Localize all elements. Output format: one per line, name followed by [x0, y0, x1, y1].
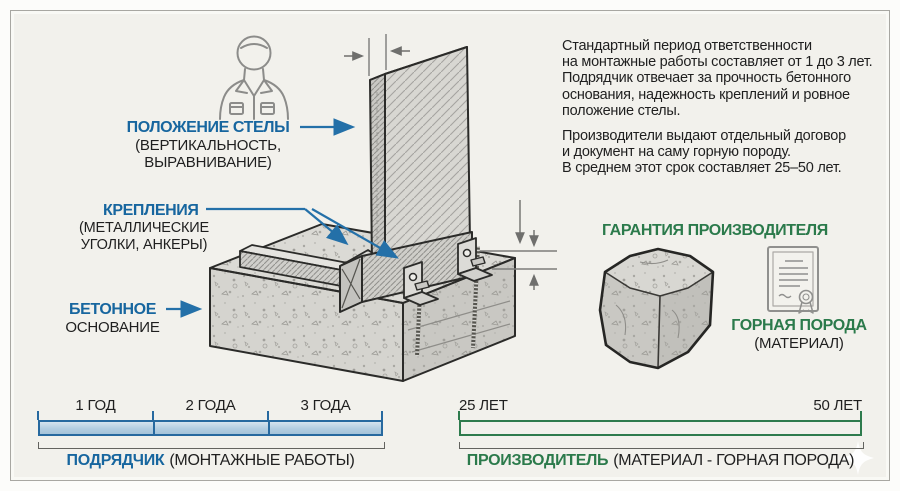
- manufacturer-timeline-bar: [459, 420, 862, 436]
- material-subtitle: (МАТЕРИАЛ): [724, 335, 874, 353]
- timeline-tick: [37, 411, 39, 420]
- stele-position-title: ПОЛОЖЕНИЕ СТЕЛЫ: [108, 118, 308, 137]
- manufacturer-brace: [459, 442, 864, 449]
- manufacturer-caption-rest: (МАТЕРИАЛ - ГОРНАЯ ПОРОДА): [613, 452, 854, 469]
- manufacturer-caption: ПРОИЗВОДИТЕЛЬ(МАТЕРИАЛ - ГОРНАЯ ПОРОДА): [449, 452, 872, 470]
- contractor-segment-2: 2 ГОДА: [153, 397, 268, 414]
- info-text-block: Стандартный период ответственности на мо…: [562, 38, 890, 177]
- manufacturer-warranty-title: ГАРАНТИЯ ПРОИЗВОДИТЕЛЯ: [602, 222, 828, 240]
- info-paragraph-1: Стандартный период ответственности на мо…: [562, 38, 890, 119]
- callout-fasteners-title: КРЕПЛЕНИЯ: [103, 202, 198, 220]
- timeline-tick: [458, 411, 460, 420]
- foundation-line1: БЕТОННОЕ: [50, 300, 175, 319]
- stele-position-line3: ВЫРАВНИВАНИЕ): [144, 154, 271, 171]
- stele-position-line2: (ВЕРТИКАЛЬНОСТЬ,: [135, 137, 281, 154]
- infographic-page: { "colors": { "accent_blue": "#17669f", …: [0, 0, 900, 491]
- material-label: ГОРНАЯ ПОРОДА (МАТЕРИАЛ): [724, 317, 874, 353]
- callout-stele-position: ПОЛОЖЕНИЕ СТЕЛЫ (ВЕРТИКАЛЬНОСТЬ, ВЫРАВНИ…: [108, 118, 308, 171]
- contractor-segment-3: 3 ГОДА: [268, 397, 383, 414]
- manufacturer-caption-bold: ПРОИЗВОДИТЕЛЬ: [467, 452, 609, 469]
- info-paragraph-2: Производители выдают отдельный договор и…: [562, 128, 890, 177]
- timeline-tick: [381, 411, 383, 420]
- manufacturer-start-label: 25 ЛЕТ: [459, 397, 559, 414]
- contractor-timeline-bar: [38, 420, 383, 436]
- contractor-brace: [38, 442, 385, 449]
- callout-foundation: БЕТОННОЕ ОСНОВАНИЕ: [50, 300, 175, 336]
- fasteners-line3: УГОЛКИ, АНКЕРЫ): [81, 237, 207, 253]
- foundation-line2: ОСНОВАНИЕ: [65, 319, 159, 336]
- contractor-caption-rest: (МОНТАЖНЫЕ РАБОТЫ): [169, 452, 354, 469]
- contractor-caption: ПОДРЯДЧИК(МОНТАЖНЫЕ РАБОТЫ): [28, 452, 393, 470]
- bar-divider: [153, 422, 155, 434]
- timeline-tick: [152, 411, 154, 420]
- material-title: ГОРНАЯ ПОРОДА: [724, 317, 874, 335]
- manufacturer-end-label: 50 ЛЕТ: [762, 397, 862, 414]
- timeline-tick: [267, 411, 269, 420]
- timeline-tick: [860, 411, 862, 420]
- bar-divider: [268, 422, 270, 434]
- contractor-caption-bold: ПОДРЯДЧИК: [67, 452, 165, 469]
- callout-fasteners-sub: (МЕТАЛЛИЧЕСКИЕ УГОЛКИ, АНКЕРЫ): [78, 220, 210, 254]
- fasteners-line2: (МЕТАЛЛИЧЕСКИЕ: [79, 220, 209, 236]
- contractor-segment-1: 1 ГОД: [38, 397, 153, 414]
